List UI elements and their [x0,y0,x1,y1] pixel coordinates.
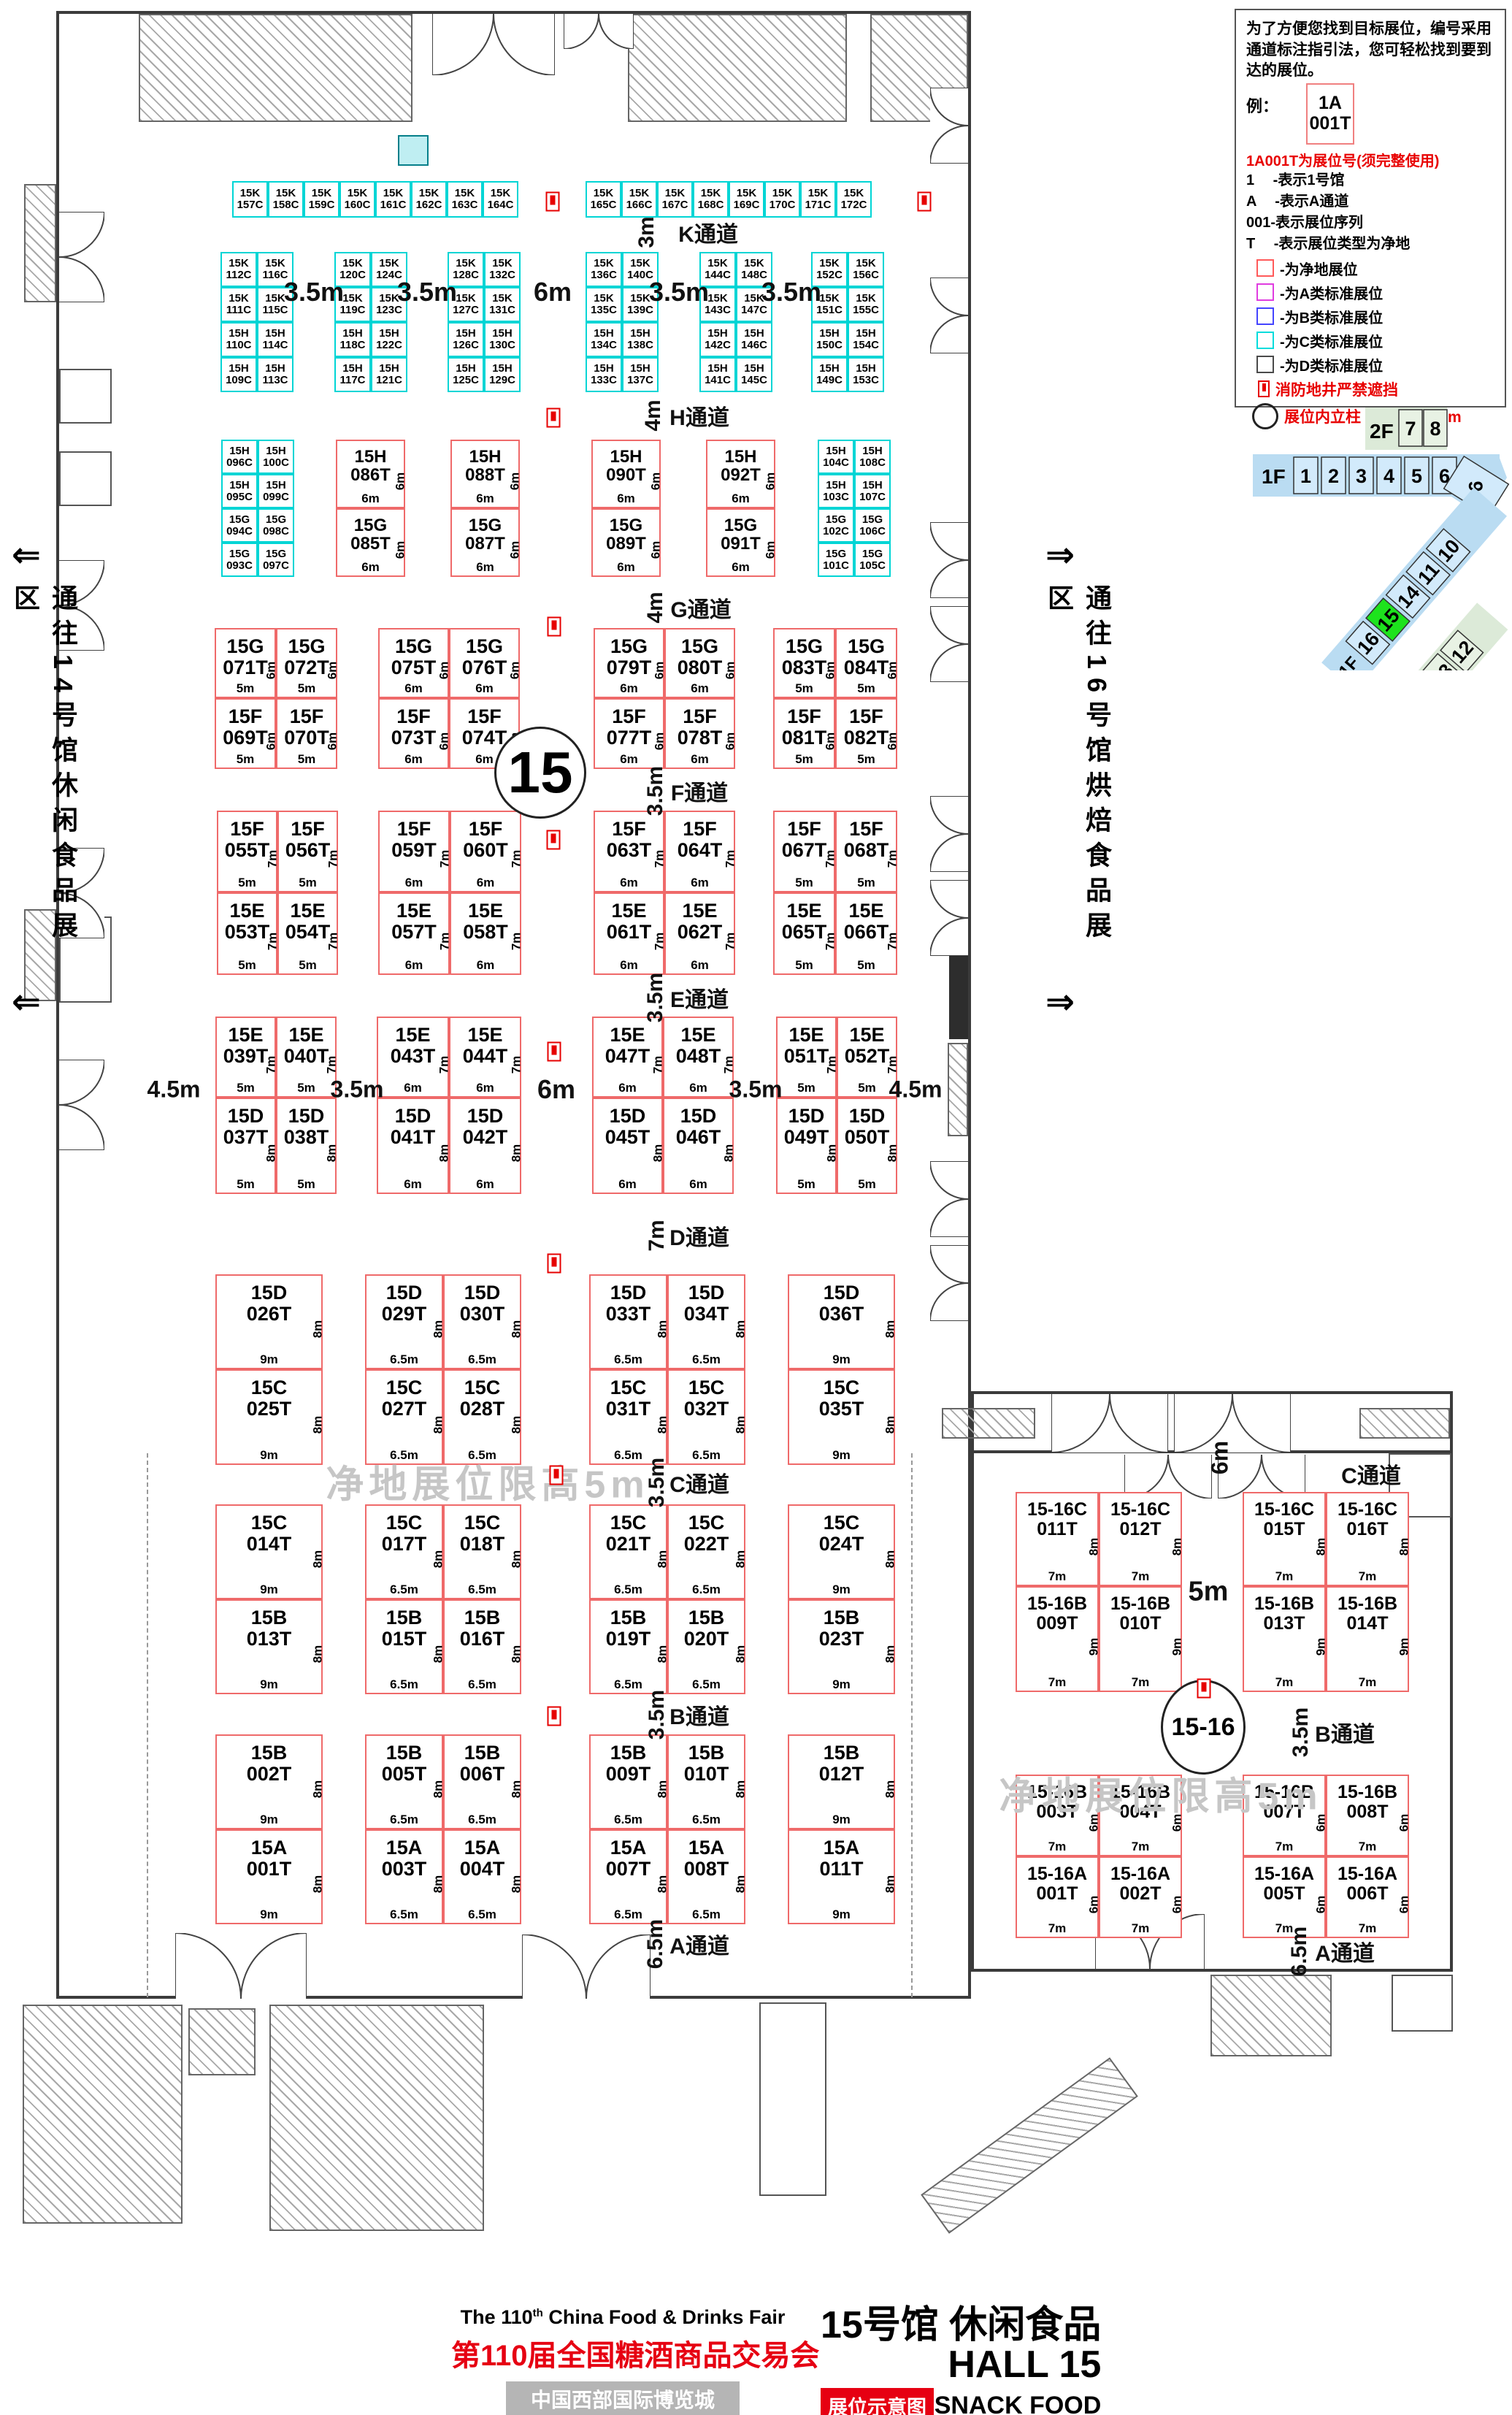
booth-code-line2: 067T [782,840,827,861]
map-label: 3.5m [1289,1707,1313,1757]
booth-15K132C: 15K132C [484,252,521,287]
booth-depth-dim: 8m [311,1415,326,1434]
booth-code-line1: 15H [591,363,617,375]
booth-width-dim: 9m [217,1907,321,1922]
booth-width-dim: 5m [775,681,834,696]
hall-title-cn: 15号馆 休闲食品 [821,2306,1101,2344]
booth-width-dim: 6.5m [591,1352,666,1367]
booth-depth-dim: 8m [886,1144,900,1163]
booth-code-line1: 15F [284,706,329,727]
svg-text:7: 7 [1405,418,1416,440]
door-arc-icon [930,606,968,682]
booth-code-line1: 15G [844,636,889,657]
booth-code-line2: 105C [859,560,886,572]
booth-code-line2: 061T [607,922,652,943]
booth-15K163C: 15K163C [447,181,483,218]
booth-depth-dim: 7m [326,932,341,950]
booth-code-line1: 15H [350,448,391,466]
booth-code-line2: 022T [684,1534,729,1555]
booth-code: 15G101C [823,548,849,572]
booth-15H129C: 15H129C [484,357,521,392]
booth-15G085T: 15G085T6m6m [336,508,405,577]
door-arc-icon [1051,1394,1168,1453]
map-tag: 展位示意图 [821,2388,934,2415]
booth-code-line2: 045T [605,1127,651,1148]
legend-headline: 1A001T为展位号(须完整使用) [1246,149,1494,170]
service-room [759,2002,826,2196]
map-label: 7m [645,1220,669,1251]
booth-15K166C: 15K166C [621,181,657,218]
booth-code-line1: 15H [853,328,879,340]
booth-code-line1: 15B [247,1742,292,1764]
booth-code-line2: 006T [460,1764,505,1785]
booth-code-line1: 15K [262,258,288,269]
booth-code-line2: 041T [391,1127,436,1148]
booth-code-line2: 057T [391,922,437,943]
booth-width-dim: 5m [218,876,276,890]
booth-code-line2: 021T [606,1534,651,1555]
booth-code-line2: 146C [741,340,767,351]
booth-code-line2: 114C [262,340,288,351]
door-arc-icon [59,1060,104,1150]
booth-depth-dim: 7m [510,1055,524,1073]
booth-15K155C: 15K155C [848,287,884,322]
map-label: 3.5m [643,766,668,816]
booth-code-line1: 15E [463,1025,508,1046]
booth-code-line2: 013T [1254,1614,1314,1634]
booth-code: 15H126C [453,328,479,351]
booth-code-line2: 001T [247,1859,292,1880]
booth-code-line2: 014T [1338,1614,1397,1634]
booth-15F059T: 15F059T7m6m [378,811,450,892]
zone-divider [911,1453,913,1997]
booth-code-line1: 15G [226,514,253,526]
booth-width-dim: 6.5m [367,1582,442,1597]
booth-15B012T: 15B012T8m9m [788,1734,895,1829]
booth-15G089T: 15G089T6m6m [591,508,661,577]
booth-15A004T: 15A004T8m6.5m [443,1829,521,1924]
legend-code-lines: 1 -表示1号馆A -表示A通道001-表示展位序列T -表示展位类型为净地 [1246,170,1494,255]
booth-code-line2: 031T [606,1398,651,1420]
booth-depth-dim: 8m [734,1875,748,1894]
booth-code-line1: 15G [823,548,849,560]
booth-code-line2: 093C [226,560,253,572]
booth-code-line2: 099C [263,491,289,503]
booth-15C035T: 15C035T8m9m [788,1369,895,1465]
booth-15K171C: 15K171C [800,181,836,218]
booth-code-line1: 15F [462,706,507,727]
booth-code: 15H114C [262,328,288,351]
booth-code-line1: 15K [488,188,514,199]
booth-code-line1: 15B [460,1742,505,1764]
booth-15C018T: 15C018T8m6.5m [443,1504,521,1599]
booth-code-line2: 163C [452,199,478,211]
booth-code-line2: 164C [488,199,514,211]
legend-code-line: T -表示展位类型为净地 [1246,234,1494,255]
booth-code-line2: 030T [460,1304,505,1325]
booth-code-line2: 014T [247,1534,292,1555]
booth-code-line2: 012T [819,1764,864,1785]
booth-code-line1: 15H [591,328,617,340]
svg-text:2F: 2F [1370,420,1394,443]
booth-code-line1: 15K [816,258,843,269]
booth-code: 15K166C [626,188,653,211]
booth-15-16B013T: 15-16B013T9m7m [1243,1586,1326,1692]
booth-depth-dim: 8m [311,1780,326,1799]
booth-code-line2: 138C [627,340,653,351]
booth-code-line1: 15H [376,328,402,340]
booth-code-line1: 15K [591,293,617,305]
hall-title-en: HALL 15 [821,2346,1101,2384]
map-label: 3.5m [643,973,668,1022]
booth-code-line1: 15K [705,258,731,269]
booth-code-line2: 056T [285,840,331,861]
booth-width-dim: 9m [217,1352,321,1367]
booth-width-dim: 5m [838,1177,896,1192]
booth-code-line2: 132C [489,269,515,281]
booth-code-line2: 135C [591,305,617,316]
booth-code-line1: 15G [859,548,886,560]
booth-15F078T: 15F078T6m6m [664,698,735,769]
booth-code-line2: 088T [465,466,505,484]
booth-code: 15K155C [853,293,879,316]
booth-code: 15H133C [591,363,617,386]
booth-15A003T: 15A003T8m6.5m [365,1829,443,1924]
booth-width-dim: 6m [380,752,448,767]
booth-width-dim: 9m [217,1677,321,1692]
booth-15F082T: 15F082T6m5m [835,698,897,769]
booth-code-line2: 042T [463,1127,508,1148]
legend-swatch-label: -为C类标准展位 [1280,330,1383,351]
booth-code-line2: 015T [1254,1520,1314,1539]
booth-code-line2: 111C [226,305,251,316]
booth-code: 15H117C [339,363,365,386]
booth-width-dim: 6m [378,1177,448,1192]
booth-code-line2: 016T [1338,1520,1397,1539]
booth-15-16B014T: 15-16B014T9m7m [1326,1586,1409,1692]
legend-swatch-row: -为A类标准展位 [1246,282,1494,303]
booth-code: 15K111C [226,293,251,316]
booth-15C022T: 15C022T8m6.5m [667,1504,745,1599]
booth-code: 15G094C [226,514,253,537]
booth-code-line2: 070T [284,727,329,749]
fire-hydrant-icon [918,192,932,212]
booth-code: 15H141C [705,363,731,386]
map-label: K通道 [678,216,738,248]
booth-width-dim: 6.5m [669,1677,744,1692]
legend-code-line: A -表示A通道 [1246,191,1494,213]
booth-code-line2: 009T [1027,1614,1087,1634]
booth-code-line1: 15G [462,636,507,657]
booth-code-line2: 016T [460,1629,505,1650]
booth-15C031T: 15C031T8m6.5m [589,1369,667,1465]
booth-15H142C: 15H142C [699,322,736,357]
booth-depth-dim: 6m [724,662,738,680]
fire-hydrant-icon [548,1707,561,1726]
booth-15G076T: 15G076T6m6m [449,628,520,698]
booth-15K164C: 15K164C [483,181,518,218]
booth-depth-dim: 8m [325,1144,339,1163]
booth-depth-dim: 6m [508,541,523,559]
booth-code-line1: 15C [460,1512,505,1534]
booth-code-line2: 032T [684,1398,729,1420]
booth-code-line2: 035T [819,1398,864,1420]
booth-15-16B009T: 15-16B009T9m7m [1016,1586,1099,1692]
map-label: C通道 [1341,1458,1401,1490]
booth-15G105C: 15G105C [854,543,891,577]
booth-depth-dim: 7m [886,932,900,950]
fire-hydrant-icon [1258,380,1270,397]
booth-depth-dim: 6m [649,472,664,491]
booth-15D049T: 15D049T8m5m [776,1098,837,1194]
booth-code-line2: 062T [678,922,723,943]
booth-code-line1: 15-16A [1110,1864,1170,1884]
booth-code-line2: 131C [489,305,515,316]
booth-code-line2: 020T [684,1629,729,1650]
fire-hydrant-icon [547,408,561,428]
booth-width-dim: 9m [217,1582,321,1597]
booth-code-line2: 029T [382,1304,427,1325]
booth-15B009T: 15B009T8m6.5m [589,1734,667,1829]
booth-code: 15K156C [853,258,879,281]
booth-width-dim: 9m [217,1448,321,1463]
booth-15G102C: 15G102C [818,508,854,543]
booth-code-line2: 083T [782,657,827,678]
booth-15D036T: 15D036T8m9m [788,1274,895,1369]
booth-code-line1: 15E [782,900,827,922]
booth-code-line1: 15K [626,188,653,199]
booth-code: 15K167C [662,188,688,211]
booth-width-dim: 5m [837,752,896,767]
booth-code: 15G093C [226,548,253,572]
booth-15K172C: 15K172C [836,181,872,218]
booth-code-line1: 15H [627,328,653,340]
booth-code: 15H118C [339,328,365,351]
booth-code: 15K170C [770,188,796,211]
booth-depth-dim: 8m [883,1550,898,1569]
booth-code-line1: 15F [844,706,889,727]
booth-width-dim: 6m [593,491,659,506]
map-label: 4m [643,592,668,623]
booth-code-line2: 040T [284,1046,329,1067]
booth-code-line1: 15C [247,1512,292,1534]
booth-code-line1: 15H [859,480,886,491]
booth-code-line2: 033T [606,1304,651,1325]
booth-code-line2: 102C [823,526,849,537]
booth-depth-dim: 6m [764,541,778,559]
booth-code: 15G106C [859,514,886,537]
booth-code-line2: 076T [462,657,507,678]
booth-code-line2: 005T [1254,1884,1314,1904]
booth-code-line2: 050T [845,1127,890,1148]
booth-code-line1: 15G [391,636,437,657]
booth-15E058T: 15E058T7m6m [450,892,521,975]
booth-code-line1: 15B [684,1742,729,1764]
booth-width-dim: 7m [1017,1840,1097,1854]
booth-width-dim: 6m [378,1081,448,1095]
booth-code-line2: 086T [350,466,391,484]
booth-code-line1: 15D [382,1282,427,1304]
booth-code-line1: 15K [489,258,515,269]
booth-code-line1: 15-16A [1338,1864,1397,1884]
booth-depth-dim: 7m [510,932,524,950]
booth-code: 15H153C [853,363,879,386]
booth-code: 15K160C [345,188,371,211]
booth-code-line1: 15K [591,258,617,269]
booth-code-line1: 15F [285,819,331,840]
booth-depth-dim: 8m [510,1144,524,1163]
legend-swatch-row: -为B类标准展位 [1246,306,1494,327]
booth-width-dim: 5m [837,958,896,973]
booth-width-dim: 5m [838,1081,896,1095]
booth-15H110C: 15H110C [220,322,257,357]
booth-code-line1: 15B [819,1607,864,1629]
booth-15G091T: 15G091T6m6m [706,508,775,577]
booth-width-dim: 6m [337,491,404,506]
booth-code-line2: 121C [376,375,402,386]
booth-code-line1: 15H [859,445,886,457]
map-label: D通道 [669,1220,729,1252]
booth-code-line1: 15K [226,258,251,269]
door-arc-icon [930,278,968,353]
booth-15H107C: 15H107C [854,474,891,508]
booth-code-line1: 15G [465,516,505,535]
booth-15D038T: 15D038T8m5m [276,1098,337,1194]
booth-code: 15K172C [841,188,867,211]
booth-15E061T: 15E061T7m6m [594,892,664,975]
booth-depth-dim: 8m [510,1780,524,1799]
booth-15B010T: 15B010T8m6.5m [667,1734,745,1829]
booth-15K168C: 15K168C [693,181,729,218]
legend-swatch-label: -为D类标准展位 [1280,354,1383,375]
map-label: A通道 [1315,1935,1375,1967]
booth-code: 15G105C [859,548,886,572]
booth-15B023T: 15B023T8m9m [788,1599,895,1694]
booth-width-dim: 5m [216,752,275,767]
booth-code-line2: 098C [263,526,289,537]
booth-code-line1: 15C [606,1377,651,1398]
booth-width-dim: 5m [279,876,337,890]
map-label: 3.5m [284,277,344,307]
booth-code: 15H129C [489,363,515,386]
booth-code-line1: 15D [684,1282,729,1304]
booth-code-line2: 149C [816,375,843,386]
booth-width-dim: 7m [1244,1921,1324,1936]
booth-15C028T: 15C028T8m6.5m [443,1369,521,1465]
door-arc-icon [432,14,555,75]
booth-depth-dim: 7m [326,850,341,868]
booth-code: 15H134C [591,328,617,351]
booth-width-dim: 6m [380,958,448,973]
booth-width-dim: 6m [451,876,520,890]
booth-code-line1: 15E [845,1025,890,1046]
booth-code-line2: 153C [853,375,879,386]
booth-depth-dim: 6m [649,541,664,559]
booth-code-line2: 156C [853,269,879,281]
booth-code-line1: 15F [223,706,268,727]
booth-15K158C: 15K158C [268,181,304,218]
booth-15F068T: 15F068T7m5m [835,811,897,892]
legend-code-line: 001-表示展位序列 [1246,213,1494,234]
booth-code-line1: 15-16C [1338,1500,1397,1520]
booth-15H100C: 15H100C [258,440,294,474]
booth-code-line1: 15D [463,1106,508,1127]
booth-type-swatch [1256,332,1274,349]
booth-code: 15K171C [805,188,832,211]
map-label: B通道 [669,1699,729,1731]
booth-code: 15H150C [816,328,843,351]
door-arc-icon [930,796,968,872]
booth-15H146C: 15H146C [736,322,772,357]
booth-15H095C: 15H095C [221,474,258,508]
booth-code-line2: 027T [382,1398,427,1420]
booth-15K157C: 15K157C [232,181,268,218]
booth-15H125C: 15H125C [448,357,484,392]
map-label: 4.5m [889,1076,943,1103]
legend-fire-note: 消防地井严禁遮挡 [1275,378,1398,400]
booth-15K170C: 15K170C [764,181,800,218]
booth-15H122C: 15H122C [371,322,407,357]
booth-15D042T: 15D042T8m6m [449,1098,521,1194]
booth-code-line1: 15K [698,188,724,199]
booth-code-line2: 074T [462,727,507,749]
booth-width-dim: 9m [789,1352,894,1367]
booth-width-dim: 6m [595,752,663,767]
booth-15D034T: 15D034T8m6.5m [667,1274,745,1369]
booth-code-line1: 15K [591,188,617,199]
booth-code-line2: 073T [391,727,437,749]
booth-width-dim: 5m [775,958,834,973]
booth-code-line2: 060T [463,840,508,861]
booth-code-line2: 081T [782,727,827,749]
svg-text:4: 4 [1384,465,1394,487]
booth-code-line2: 170C [770,199,796,211]
booth-code-line1: 15-16A [1254,1864,1314,1884]
booth-depth-dim: 8m [883,1780,898,1799]
booth-width-dim: 5m [775,752,834,767]
booth-width-dim: 5m [217,1081,275,1095]
booth-15K159C: 15K159C [304,181,339,218]
booth-code: 15K162C [416,188,442,211]
booth-code-line1: 15E [676,1025,721,1046]
booth-code-line2: 100C [263,457,289,469]
svg-text:2: 2 [1328,465,1339,487]
booth-code-line1: 15K [380,188,407,199]
booth-code-line2: 018T [460,1534,505,1555]
map-label: 3.5m [761,277,821,307]
booth-15F070T: 15F070T6m5m [276,698,337,769]
booth-code: 15K161C [380,188,407,211]
fire-hydrant-icon [550,1466,564,1485]
booth-code-line1: 15K [841,188,867,199]
booth-width-dim: 6.5m [669,1352,744,1367]
booth-15A001T: 15A001T8m9m [215,1829,323,1924]
door-arc-icon [930,1245,968,1321]
service-room [24,184,56,302]
booth-code-line1: 15A [382,1837,427,1859]
booth-code-line1: 15E [678,900,723,922]
booth-code: 15H137C [627,363,653,386]
booth-width-dim: 6m [664,1177,732,1192]
booth-code-line2: 084T [844,657,889,678]
booth-15K167C: 15K167C [657,181,693,218]
booth-code-line2: 034T [684,1304,729,1325]
booth-code: 15H108C [859,445,886,469]
booth-width-dim: 6m [337,560,404,575]
booth-15K156C: 15K156C [848,252,884,287]
booth-code-line1: 15H [339,328,365,340]
booth-15H150C: 15H150C [811,322,848,357]
